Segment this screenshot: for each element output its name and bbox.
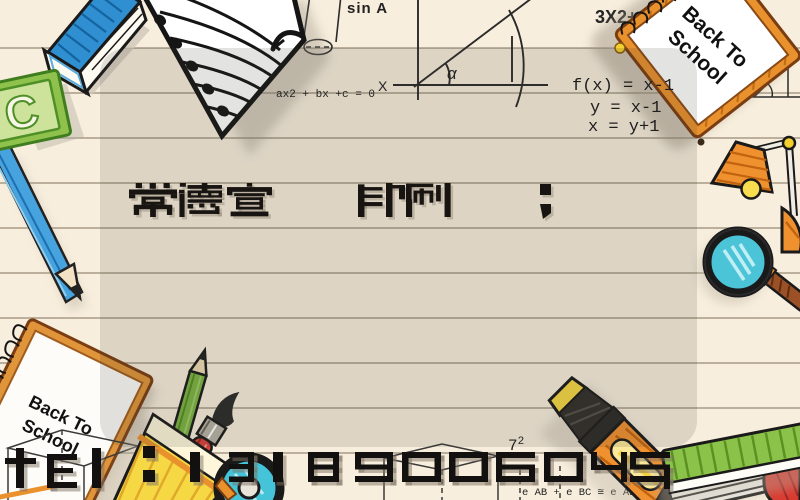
svg-text:sin A: sin A <box>347 0 388 17</box>
